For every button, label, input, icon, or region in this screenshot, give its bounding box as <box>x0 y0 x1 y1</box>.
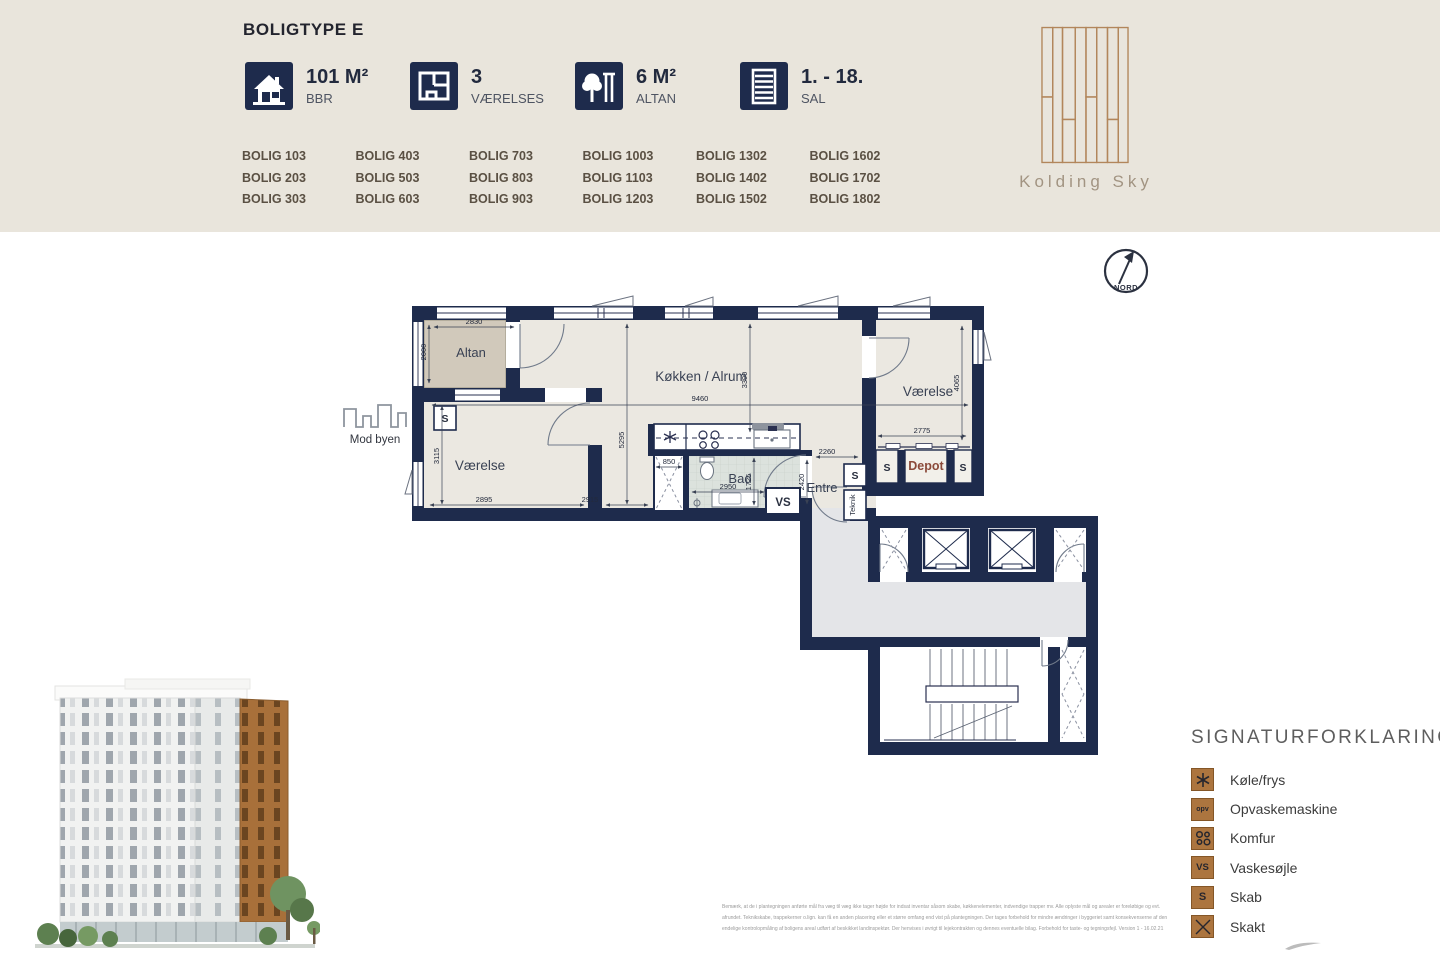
kitchen-counter <box>654 423 800 450</box>
svg-text:2775: 2775 <box>914 426 931 435</box>
legend-item: Komfur <box>1191 824 1431 853</box>
room-label-vaerelse2: Værelse <box>903 384 953 399</box>
balcony-tree-icon <box>575 62 623 110</box>
s-marker: S <box>883 462 890 474</box>
legend-item: Køle/frys <box>1191 765 1431 794</box>
opv-icon: opv <box>1191 798 1214 821</box>
room-label-altan: Altan <box>456 345 486 360</box>
room-label-vaerelse1: Værelse <box>455 458 505 473</box>
room-label-entre: Entre <box>806 480 837 495</box>
svg-text:2895: 2895 <box>476 495 493 504</box>
unit-item: BOLIG 1402 <box>696 168 810 190</box>
unit-item: BOLIG 303 <box>242 189 356 211</box>
svg-text:9460: 9460 <box>692 394 709 403</box>
stat-floors: 1. - 18. SAL <box>740 62 863 110</box>
direction-label: Mod byen <box>350 434 401 446</box>
legend: SIGNATURFORKLARING Køle/frys opv Opvaske… <box>1191 727 1431 941</box>
unit-list: BOLIG 103 BOLIG 203 BOLIG 303 BOLIG 403 … <box>242 146 923 211</box>
svg-text:850: 850 <box>663 457 676 466</box>
asterisk-icon <box>1191 768 1214 791</box>
unit-item: BOLIG 1802 <box>810 189 924 211</box>
room-label-bad: Bad <box>728 471 751 486</box>
vs-icon: VS <box>1191 856 1214 879</box>
legend-item: VS Vaskesøjle <box>1191 853 1431 882</box>
toilet-icon <box>701 463 714 480</box>
corridor-fill <box>812 521 868 637</box>
building-photo <box>30 672 320 950</box>
unit-item: BOLIG 1502 <box>696 189 810 211</box>
floors-icon <box>740 62 788 110</box>
unit-item: BOLIG 1103 <box>583 168 697 190</box>
legend-title: SIGNATURFORKLARING <box>1191 727 1431 749</box>
stat-floors-label: SAL <box>801 91 863 106</box>
disclaimer-line: Bemærk, at de i plantegningen anførte må… <box>722 902 1167 913</box>
stat-balcony-label: ALTAN <box>636 91 676 106</box>
svg-text:2260: 2260 <box>819 447 836 456</box>
stat-rooms-label: VÆRELSES <box>471 91 544 106</box>
legend-item: S Skab <box>1191 883 1431 912</box>
depot-row: S Depot S <box>876 450 972 483</box>
unit-item: BOLIG 803 <box>469 168 583 190</box>
kolding-sky-logo-icon <box>1041 26 1129 169</box>
house-icon <box>245 62 293 110</box>
floorplan-icon <box>410 62 458 110</box>
stat-area-label: BBR <box>306 91 368 106</box>
room-altan: Altan <box>424 320 506 388</box>
unit-item: BOLIG 1203 <box>583 189 697 211</box>
svg-text:4065: 4065 <box>952 375 961 392</box>
unit-item: BOLIG 103 <box>242 146 356 168</box>
watermark-icon <box>1283 941 1323 951</box>
svg-text:5295: 5295 <box>617 432 626 449</box>
floor-plan: Altan <box>330 240 1170 960</box>
unit-item: BOLIG 703 <box>469 146 583 168</box>
legend-item: Skakt <box>1191 912 1431 941</box>
disclaimer-line: afrundet. Teknikskabe, trappekerner o.li… <box>722 913 1167 924</box>
north-compass-icon: NORD <box>1105 250 1147 292</box>
unit-item: BOLIG 1602 <box>810 146 924 168</box>
skyline-icon <box>344 405 406 427</box>
vs-marker: VS <box>775 497 791 509</box>
page-title: BOLIGTYPE E <box>243 20 364 40</box>
svg-text:2420: 2420 <box>797 474 806 491</box>
teknik-label: Teknik <box>848 494 857 516</box>
brochure-page: BOLIGTYPE E 101 M² BBR <box>0 0 1440 960</box>
burners-icon <box>1191 827 1214 850</box>
stat-area-value: 101 M² <box>306 66 368 88</box>
compass-label: NORD <box>1114 283 1138 292</box>
unit-item: BOLIG 203 <box>242 168 356 190</box>
unit-item: BOLIG 603 <box>356 189 470 211</box>
cross-icon <box>1191 915 1214 938</box>
svg-text:3115: 3115 <box>432 448 441 464</box>
s-marker: S <box>851 470 858 482</box>
mod-byen: Mod byen <box>344 405 406 446</box>
svg-text:2915: 2915 <box>582 495 599 504</box>
svg-text:2830: 2830 <box>466 317 483 326</box>
legend-item: opv Opvaskemaskine <box>1191 794 1431 823</box>
s-marker: S <box>959 462 966 474</box>
disclaimer: Bemærk, at de i plantegningen anførte må… <box>722 902 1167 935</box>
stat-area: 101 M² BBR <box>245 62 368 110</box>
unit-item: BOLIG 903 <box>469 189 583 211</box>
room-label-koekken: Køkken / Alrum <box>655 369 747 384</box>
disclaimer-line: endelige kontrolopmåling af boligens are… <box>722 924 1167 935</box>
svg-text:2000: 2000 <box>419 344 428 361</box>
stat-rooms: 3 VÆRELSES <box>410 62 544 110</box>
stat-balcony-value: 6 M² <box>636 66 676 88</box>
stat-floors-value: 1. - 18. <box>801 66 863 88</box>
unit-item: BOLIG 503 <box>356 168 470 190</box>
room-label-depot: Depot <box>908 459 944 473</box>
unit-item: BOLIG 1702 <box>810 168 924 190</box>
unit-item: BOLIG 1003 <box>583 146 697 168</box>
s-marker: S <box>441 413 448 425</box>
s-icon: S <box>1191 886 1214 909</box>
brand-name: Kolding Sky <box>986 172 1186 192</box>
unit-item: BOLIG 403 <box>356 146 470 168</box>
unit-item: BOLIG 1302 <box>696 146 810 168</box>
stat-rooms-value: 3 <box>471 66 544 88</box>
stat-balcony: 6 M² ALTAN <box>575 62 676 110</box>
